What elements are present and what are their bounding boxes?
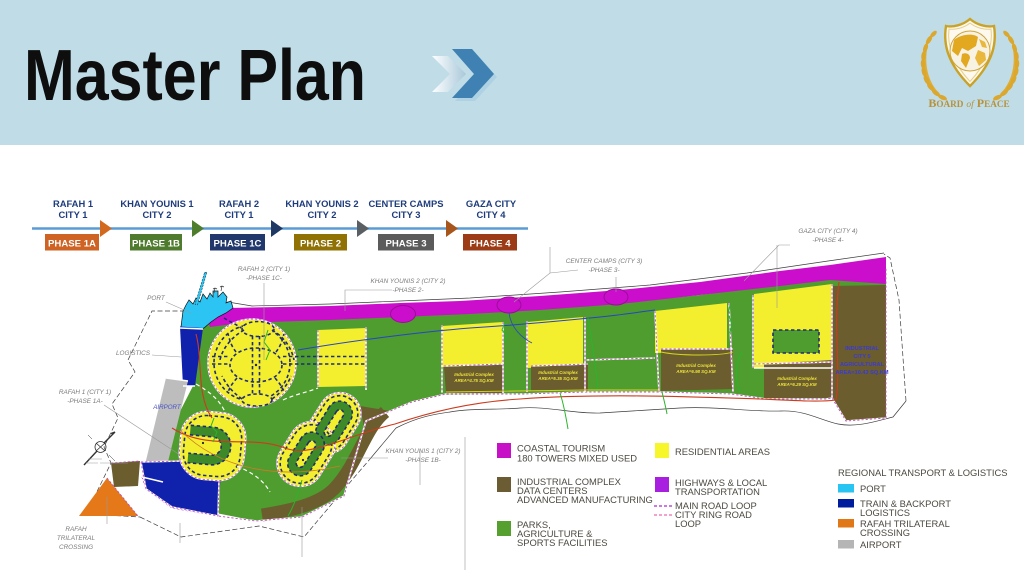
svg-text:AREA=6.98 SQ.KM: AREA=6.98 SQ.KM (675, 369, 716, 374)
svg-text:CROSSING: CROSSING (860, 527, 910, 538)
svg-text:ADVANCED MANUFACTURING: ADVANCED MANUFACTURING (517, 494, 653, 505)
svg-text:TRILATERAL: TRILATERAL (57, 535, 96, 542)
svg-text:PORT: PORT (147, 295, 166, 302)
svg-text:GAZA CITY (CITY 4): GAZA CITY (CITY 4) (798, 228, 857, 235)
svg-text:PHASE 4: PHASE 4 (469, 239, 511, 250)
svg-text:INDUSTRIAL: INDUSTRIAL (845, 346, 879, 352)
svg-text:AGRICULTURAL: AGRICULTURAL (840, 362, 885, 368)
svg-text:-PHASE 1C-: -PHASE 1C- (246, 275, 282, 282)
svg-text:RAFAH 2: RAFAH 2 (219, 198, 259, 209)
svg-text:GAZA CITY: GAZA CITY (466, 198, 517, 209)
svg-text:Master Plan: Master Plan (24, 35, 366, 116)
svg-text:AIRPORT: AIRPORT (152, 404, 182, 411)
svg-text:PORT: PORT (860, 483, 886, 494)
svg-text:CITY 4: CITY 4 (476, 209, 506, 220)
svg-text:PHASE 3: PHASE 3 (385, 239, 426, 250)
svg-text:AREA=6.29 SQ.KM: AREA=6.29 SQ.KM (776, 382, 817, 387)
svg-text:PHASE 1B: PHASE 1B (132, 239, 180, 250)
svg-text:-PHASE 1B-: -PHASE 1B- (405, 457, 441, 464)
svg-text:Industrial Complex: Industrial Complex (777, 376, 817, 381)
svg-text:CENTER CAMPS (CITY 3): CENTER CAMPS (CITY 3) (566, 258, 643, 265)
svg-text:AREA=5.35 SQ.KM: AREA=5.35 SQ.KM (537, 376, 578, 381)
svg-text:RAFAH 1 (CITY 1): RAFAH 1 (CITY 1) (59, 389, 111, 396)
svg-text:AIRPORT: AIRPORT (860, 539, 902, 550)
svg-text:LOGISTICS: LOGISTICS (860, 507, 910, 518)
svg-text:TRANSPORTATION: TRANSPORTATION (675, 486, 760, 497)
svg-text:REGIONAL TRANSPORT & LOGISTICS: REGIONAL TRANSPORT & LOGISTICS (838, 467, 1008, 478)
svg-text:Industrial Complex: Industrial Complex (538, 370, 578, 375)
svg-text:LOGISTICS: LOGISTICS (116, 350, 151, 357)
svg-text:PHASE 1C: PHASE 1C (214, 239, 262, 250)
svg-text:RESIDENTIAL AREAS: RESIDENTIAL AREAS (675, 446, 770, 457)
svg-text:AREA=4.75 SQ.KM: AREA=4.75 SQ.KM (453, 378, 494, 383)
svg-text:Industrial Complex: Industrial Complex (454, 372, 494, 377)
svg-text:CENTER CAMPS: CENTER CAMPS (368, 198, 443, 209)
svg-text:RAFAH 2 (CITY 1): RAFAH 2 (CITY 1) (238, 266, 290, 273)
svg-text:KHAN YOUNIS 2: KHAN YOUNIS 2 (285, 198, 358, 209)
svg-text:-PHASE 3-: -PHASE 3- (588, 267, 619, 274)
svg-text:RAFAH: RAFAH (65, 526, 87, 533)
svg-text:LOOP: LOOP (675, 518, 701, 529)
svg-text:CITY 1: CITY 1 (58, 209, 87, 220)
svg-text:CITY 5: CITY 5 (853, 354, 870, 360)
svg-text:CITY 2: CITY 2 (142, 209, 171, 220)
svg-text:SPORTS FACILITIES: SPORTS FACILITIES (517, 537, 607, 548)
svg-text:CITY 3: CITY 3 (391, 209, 420, 220)
svg-text:KHAN YOUNIS 2 (CITY 2): KHAN YOUNIS 2 (CITY 2) (370, 278, 445, 285)
svg-text:CITY 2: CITY 2 (307, 209, 336, 220)
svg-text:-PHASE 1A-: -PHASE 1A- (67, 398, 103, 405)
svg-text:PHASE 1A: PHASE 1A (48, 239, 96, 250)
svg-text:KHAN YOUNIS 1 (CITY 2): KHAN YOUNIS 1 (CITY 2) (385, 448, 460, 455)
svg-text:-PHASE 4-: -PHASE 4- (812, 237, 843, 244)
svg-text:180 TOWERS MIXED USED: 180 TOWERS MIXED USED (517, 453, 637, 464)
svg-text:Industrial Complex: Industrial Complex (676, 363, 716, 368)
svg-text:CITY 1: CITY 1 (224, 209, 253, 220)
svg-text:PHASE 2: PHASE 2 (300, 239, 341, 250)
svg-text:RAFAH 1: RAFAH 1 (53, 198, 93, 209)
svg-text:-PHASE 2-: -PHASE 2- (392, 287, 423, 294)
svg-text:AREA=10.43 SQ.KM: AREA=10.43 SQ.KM (835, 370, 888, 376)
svg-text:KHAN YOUNIS 1: KHAN YOUNIS 1 (120, 198, 193, 209)
svg-text:CROSSING: CROSSING (59, 544, 93, 551)
